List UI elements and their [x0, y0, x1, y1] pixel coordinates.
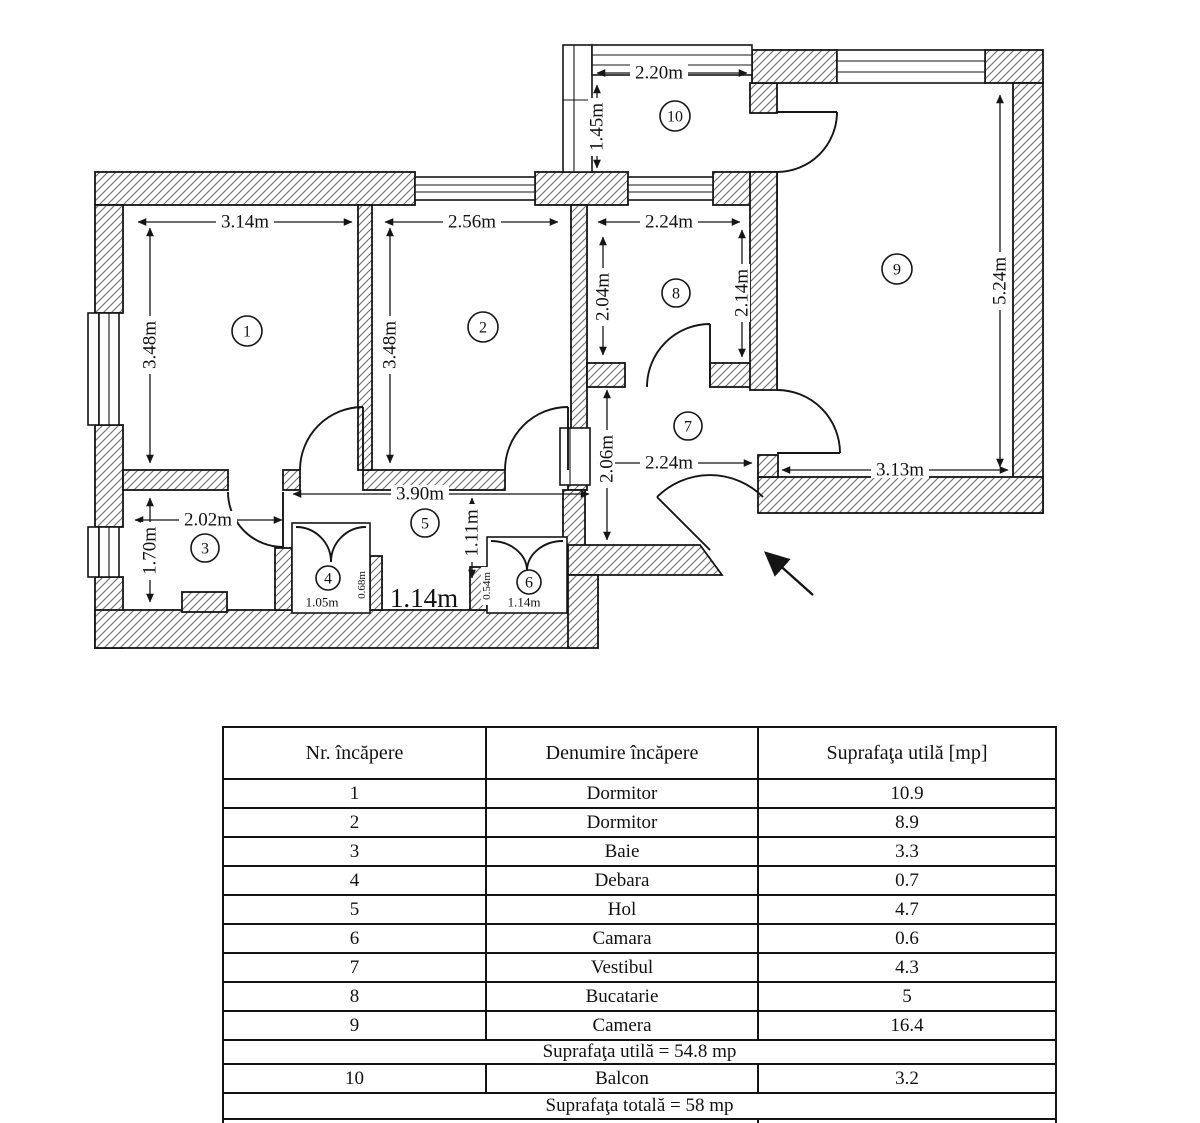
dim-label: 0.68m [356, 571, 368, 599]
total-label: Suprafaţa totală = 58 mp [223, 1093, 1056, 1119]
room-number-cell: 3 [223, 837, 486, 866]
dim-label: 1.11m [462, 509, 483, 557]
svg-text:2: 2 [479, 320, 487, 337]
room-name-cell: Vestibul [486, 953, 758, 982]
room-number-cell: 6 [223, 924, 486, 953]
room-badge-3: 3 [191, 534, 219, 562]
room-area-cell: 16.4 [758, 1011, 1056, 1040]
table-row: 6 Camara 0.6 [223, 924, 1056, 953]
room-area-cell: 5 [758, 982, 1056, 1011]
svg-text:6: 6 [525, 575, 533, 592]
partial-cutoff-row [223, 1119, 1056, 1123]
dim-label: 3.13m [876, 460, 924, 481]
room-area-cell: 4.3 [758, 953, 1056, 982]
room-badge-9: 9 [882, 254, 912, 284]
room-name-cell: Balcon [486, 1064, 758, 1093]
door-balcony [777, 112, 837, 172]
room-name-cell: Camara [486, 924, 758, 953]
room-number-cell: 2 [223, 808, 486, 837]
room-name-cell: Bucatarie [486, 982, 758, 1011]
door-room1 [300, 407, 363, 470]
room-name-cell: Camera [486, 1011, 758, 1040]
room-area-cell: 3.3 [758, 837, 1056, 866]
dim-label: 2.56m [448, 212, 496, 233]
header-room-name: Denumire încăpere [486, 727, 758, 779]
dim-label: 1.70m [140, 527, 161, 575]
door-entrance [657, 475, 763, 550]
dim-label: 2.06m [597, 435, 618, 483]
dim-label: 2.24m [645, 212, 693, 233]
total-row: Suprafaţa totală = 58 mp [223, 1093, 1056, 1119]
window-room9-top [837, 50, 985, 83]
svg-text:10: 10 [667, 109, 683, 126]
room-badge-5: 5 [411, 509, 439, 537]
room-number-cell: 9 [223, 1011, 486, 1040]
room-name-cell: Dormitor [486, 779, 758, 808]
table-row: 1 Dormitor 10.9 [223, 779, 1056, 808]
table-row: 8 Bucatarie 5 [223, 982, 1056, 1011]
header-room-number: Nr. încăpere [223, 727, 486, 779]
subtotal-row: Suprafaţa utilă = 54.8 mp [223, 1040, 1056, 1064]
floorplan-svg: 2.20m 3.14m 2.56m 2.24m 2.24m 3.13m 2.02… [0, 0, 1200, 715]
room-number-cell: 7 [223, 953, 486, 982]
table-header-row: Nr. încăpere Denumire încăpere Suprafaţa… [223, 727, 1056, 779]
room-number-cell: 8 [223, 982, 486, 1011]
room-area-cell: 0.7 [758, 866, 1056, 895]
table-row: 7 Vestibul 4.3 [223, 953, 1056, 982]
dim-label: 0.54m [481, 572, 493, 600]
dim-label: 5.24m [990, 257, 1011, 305]
room-number-cell: 10 [223, 1064, 486, 1093]
room-area-cell: 8.9 [758, 808, 1056, 837]
dim-label: 1.05m [306, 595, 339, 610]
dim-label: 3.90m [396, 484, 444, 505]
dim-label: 1.14m [508, 595, 541, 610]
table-row-balcony: 10 Balcon 3.2 [223, 1064, 1056, 1093]
dim-label: 2.14m [732, 269, 753, 317]
dim-label: 3.14m [221, 212, 269, 233]
scanned-floorplan-document: 2.20m 3.14m 2.56m 2.24m 2.24m 3.13m 2.02… [0, 0, 1200, 1123]
room-area-cell: 3.2 [758, 1064, 1056, 1093]
svg-text:4: 4 [324, 571, 332, 588]
room-number-cell: 4 [223, 866, 486, 895]
room-badge-2: 2 [468, 312, 498, 342]
table-row: 4 Debara 0.7 [223, 866, 1056, 895]
room-name-cell: Baie [486, 837, 758, 866]
table-row: 5 Hol 4.7 [223, 895, 1056, 924]
dim-label: 1.14m [390, 583, 458, 613]
window-room2-top [415, 177, 535, 200]
table-row: 3 Baie 3.3 [223, 837, 1056, 866]
door-room9 [777, 390, 840, 453]
svg-text:5: 5 [421, 516, 429, 533]
entrance-arrow-icon [766, 553, 813, 595]
table-row: 9 Camera 16.4 [223, 1011, 1056, 1040]
room-name-cell: Hol [486, 895, 758, 924]
window-kitchen-balcony [628, 177, 713, 200]
window-hall-vestibul [560, 428, 590, 485]
header-room-area: Suprafaţa utilă [mp] [758, 727, 1056, 779]
room-badge-10: 10 [660, 101, 690, 131]
room-name-cell: Dormitor [486, 808, 758, 837]
room-area-cell: 4.7 [758, 895, 1056, 924]
room-badge-4: 4 [316, 566, 340, 590]
svg-text:1: 1 [243, 324, 251, 341]
dim-label: 1.45m [587, 103, 608, 151]
room-area-cell: 10.9 [758, 779, 1056, 808]
room-badge-7: 7 [674, 412, 702, 440]
dim-label: 2.04m [593, 273, 614, 321]
dim-label: 2.24m [645, 453, 693, 474]
room-number-cell: 1 [223, 779, 486, 808]
svg-text:7: 7 [684, 419, 692, 436]
room-name-cell: Debara [486, 866, 758, 895]
room-area-table: Nr. încăpere Denumire încăpere Suprafaţa… [222, 726, 1057, 1123]
room-badge-8: 8 [662, 279, 690, 307]
svg-text:9: 9 [893, 262, 901, 279]
room-badge-6: 6 [517, 570, 541, 594]
window-room1-left [88, 313, 119, 425]
room-number-cell: 5 [223, 895, 486, 924]
dim-label: 2.02m [184, 510, 232, 531]
door-room2 [505, 407, 568, 470]
svg-text:8: 8 [672, 286, 680, 303]
dim-label: 2.20m [635, 63, 683, 84]
svg-text:3: 3 [201, 541, 209, 558]
window-bath-left [88, 527, 119, 577]
room-area-cell: 0.6 [758, 924, 1056, 953]
door-kitchen [647, 324, 710, 387]
room-badge-1: 1 [232, 316, 262, 346]
dim-label: 3.48m [140, 321, 161, 369]
table-row: 2 Dormitor 8.9 [223, 808, 1056, 837]
subtotal-label: Suprafaţa utilă = 54.8 mp [223, 1040, 1056, 1064]
dim-label: 3.48m [380, 321, 401, 369]
